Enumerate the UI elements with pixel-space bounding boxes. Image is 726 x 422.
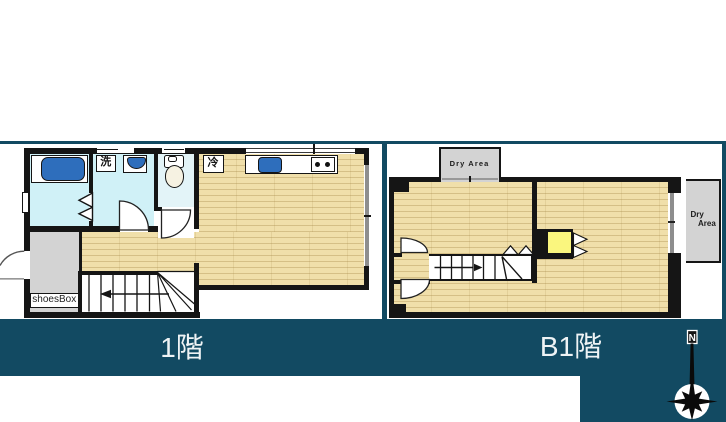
svg-text:N: N — [689, 333, 696, 344]
